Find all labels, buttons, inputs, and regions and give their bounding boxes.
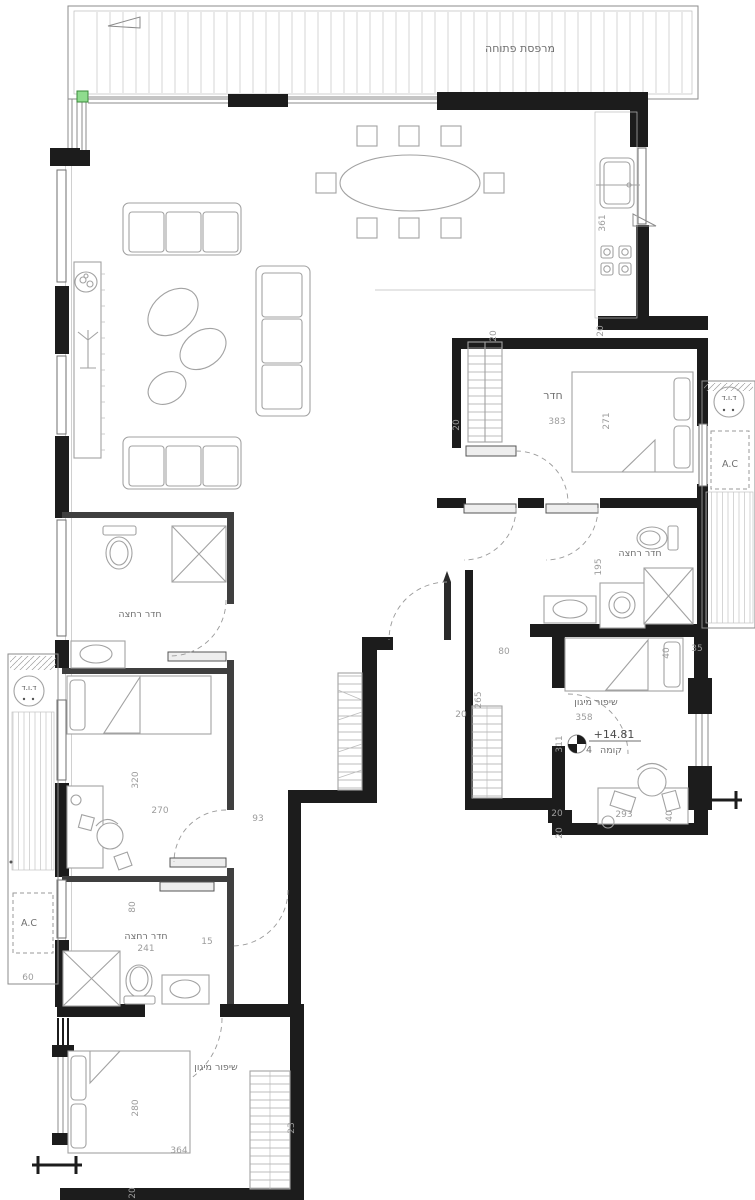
dining-chair [441,126,461,146]
sliding-door-hall-1 [464,504,516,513]
dim-safe-bottom-d: 280 [131,1099,141,1116]
window-left-2 [57,356,66,434]
dim-corridor-mid: 93 [252,814,263,824]
dim-wall: 20 [551,809,563,819]
wardrobe-icon [250,1071,290,1189]
double-bed-icon [572,372,693,472]
label-elevation-floor: קומה [600,745,622,756]
label-boiler-left: ד.ו.ד [22,683,37,692]
corridor-shaft-middle [338,673,362,790]
dining-chair [399,126,419,146]
sofa-bottom [123,437,241,489]
window-left-3 [57,520,66,636]
console-sideboard [74,262,105,458]
door-bathroom-top [168,652,226,661]
shower-icon [63,951,120,1006]
living-room-furniture [74,112,640,489]
office-chair-icon [97,823,123,849]
door-corridor [160,882,214,891]
label-ac-left: A.C [21,918,37,929]
window-left-1 [57,170,66,282]
bathroom-right [544,526,693,628]
dim-wall: 20 [555,827,565,839]
plant-icon [75,272,97,292]
dim-bedroom-right-w: 383 [548,417,565,427]
dim-wall: 20 [452,419,462,431]
floor-plan-page: מרפסת פתוחה חדר חדר רחצה שיפור מיגון חדר… [0,0,755,1200]
bathroom-left-top [71,526,226,668]
dim-bath-bottom-d: 80 [128,901,138,913]
kitchen-sink-icon [596,158,640,208]
window-kitchen [638,148,646,224]
sink-icon [162,975,209,1004]
service-balcony-left [8,654,58,984]
label-open-balcony: מרפסת פתוחה [485,42,555,55]
dim-wardrobe: 23 [287,1122,297,1133]
washing-machine-icon [600,583,645,628]
label-safe-room-bottom: שיפור מיגון [194,1062,238,1073]
dim-bedroom-left-d: 320 [131,771,141,788]
door-bedroom-left [170,858,226,867]
dining-chair [357,218,377,238]
cooktop-icon [601,246,631,275]
dining-chair [484,173,504,193]
office-chair-icon [638,768,666,796]
sofa-right [256,266,310,416]
sofa-top [123,203,241,255]
label-elevation-floor-number: 4 [586,745,592,756]
dim-kitchen: 361 [598,214,608,231]
safe-room-bottom [68,1051,290,1189]
dining-chair [357,126,377,146]
shower-icon [172,526,226,582]
corridor-closet-right [472,706,502,798]
double-bed-icon [68,1051,190,1153]
sink-icon [544,596,596,623]
floor-plan-drawing: מרפסת פתוחה חדר חדר רחצה שיפור מיגון חדר… [0,0,755,1200]
dim-wall: 20 [489,330,499,342]
dining-chair [441,218,461,238]
deck-hatch [86,12,688,93]
green-corner-marker [77,91,88,102]
sliding-door-hall-2 [546,504,598,513]
toilet-icon [103,526,136,569]
dim-desk: 293 [615,810,632,820]
dim-corridor-right: 80 [498,647,510,657]
coffee-tables [139,279,234,411]
label-bathroom-right: חדר רחצה [618,548,661,559]
label-elevation-value: +14.81 [594,728,635,741]
dim-window: 40 [665,810,675,822]
dim-safe-bottom-w: 364 [170,1146,187,1156]
dim-safe-right-d: 311 [555,735,565,752]
single-bed-icon [565,638,683,691]
single-bed-icon [67,676,211,734]
label-safe-room-right: שיפור מיגון [574,697,618,708]
label-bathroom-left-top: חדר רחצה [118,609,161,620]
dim-bedroom-left-w: 270 [151,806,168,816]
door-bedroom-right [466,446,516,456]
dining-set [316,126,504,238]
sink-icon [71,641,125,668]
toilet-icon [637,526,678,550]
label-bedroom-right: חדר [543,389,562,402]
dim-wall: 20 [455,710,467,720]
dim-wall: 20 [128,1187,138,1199]
toilet-icon [124,965,155,1004]
dining-table [340,155,480,211]
dining-chair [399,218,419,238]
dim-offset: 15 [201,937,212,947]
dining-chair [316,173,336,193]
dim-balcony-left: 60 [22,973,34,983]
water-heater-icon [714,387,744,417]
shower-icon [644,568,693,624]
entrance-door [389,571,451,640]
wardrobe-icon [468,342,502,442]
dim-gap: 35 [691,644,702,654]
dim-bed: 40 [662,647,672,659]
coat-rack-icon [78,330,98,368]
label-ac-right: A.C [722,459,738,470]
bathroom-left-bottom [63,951,209,1006]
dim-wall: 20 [596,325,606,337]
dim-safe-right-w: 358 [575,713,592,723]
service-balcony-right [702,381,755,628]
desk-and-chair [67,786,132,870]
dim-closet: 265 [474,691,484,708]
label-bathroom-left-bottom: חדר רחצה [124,931,167,942]
dim-bathroom-right: 195 [594,558,604,575]
window-bedroom-right [699,424,707,486]
dim-bedroom-right-d: 271 [602,412,612,429]
dim-bath-bottom-w: 241 [137,944,154,954]
label-boiler-right: ד.ו.ד [722,393,737,402]
door-bathroom-bottom [232,890,288,946]
